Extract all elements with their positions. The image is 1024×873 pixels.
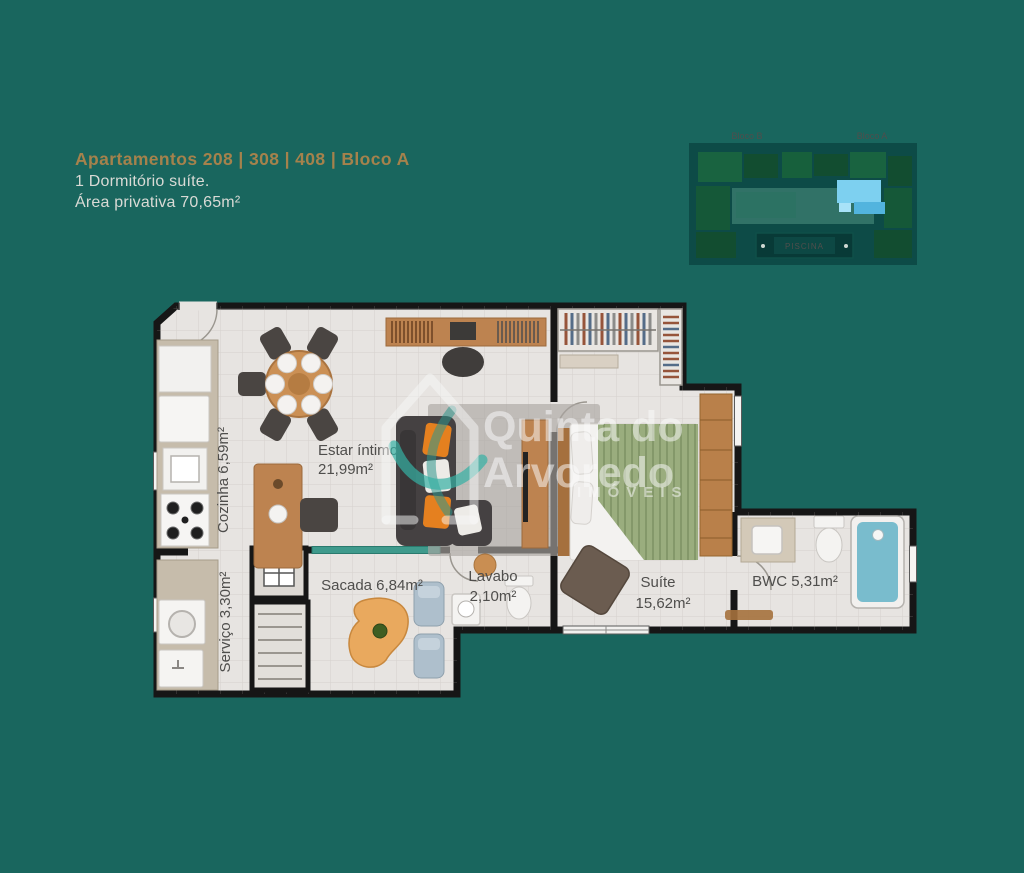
- peninsula-chair: [300, 498, 338, 532]
- label-estar-line2: 21,99m²: [318, 461, 373, 478]
- site-map-piscina: PISCINA: [756, 233, 853, 258]
- label-lavabo-line1: Lavabo: [468, 568, 517, 585]
- page: { "header": { "title": "Apartamentos 208…: [0, 0, 1024, 873]
- site-map-piscina-label: PISCINA: [785, 242, 824, 251]
- label-lavabo-line2: 2,10m²: [470, 588, 517, 605]
- laundry-tub: [159, 650, 203, 687]
- laptop: [450, 322, 476, 340]
- label-bwc: BWC 5,31m²: [752, 573, 838, 590]
- fridge: [159, 396, 209, 442]
- subtitle-dormitorio: 1 Dormitório suíte.: [75, 174, 410, 190]
- service-shafts: [252, 548, 308, 690]
- bathtub: [851, 516, 904, 608]
- bwc-sink: [752, 526, 782, 554]
- kitchen-cabinet: [159, 346, 211, 392]
- label-servico: Serviço 3,30m²: [217, 572, 234, 673]
- stove: [161, 494, 209, 546]
- label-suite-line2: 15,62m²: [635, 595, 690, 612]
- site-map-highlighted-unit: [837, 180, 885, 214]
- subtitle-area: Área privativa 70,65m²: [75, 195, 410, 211]
- label-suite-line1: Suíte: [640, 574, 675, 591]
- site-map: Bloco B Bloco A PISCINA: [686, 126, 920, 268]
- sacada-glass-door: [312, 547, 440, 554]
- watermark-line1: Quinta do: [483, 403, 684, 451]
- entry-door-gap: [179, 302, 217, 311]
- site-map-bloco-a-label: Bloco A: [857, 131, 888, 141]
- header: Apartamentos 208 | 308 | 408 | Bloco A 1…: [75, 151, 410, 211]
- bwc-doormat: [725, 610, 773, 620]
- washing-machine: [159, 600, 205, 644]
- page-title: Apartamentos 208 | 308 | 408 | Bloco A: [75, 151, 410, 169]
- watermark-line3: IMÓVEIS: [577, 483, 689, 501]
- kitchen-counter: [157, 340, 218, 548]
- label-sacada: Sacada 6,84m²: [321, 577, 423, 594]
- bwc-toilet: [814, 516, 844, 562]
- floor-plan: Cozinha 6,59m² Serviço 3,30m² Estar ínti…: [145, 295, 920, 700]
- suite-wardrobe: [700, 394, 732, 556]
- suite-window: [735, 396, 742, 446]
- closet-shelf: [560, 355, 618, 368]
- site-map-bloco-b-label: Bloco B: [731, 131, 762, 141]
- laundry-area: [157, 560, 218, 690]
- desk-chair: [442, 347, 484, 377]
- bwc-window: [910, 546, 917, 582]
- label-cozinha: Cozinha 6,59m²: [215, 427, 232, 533]
